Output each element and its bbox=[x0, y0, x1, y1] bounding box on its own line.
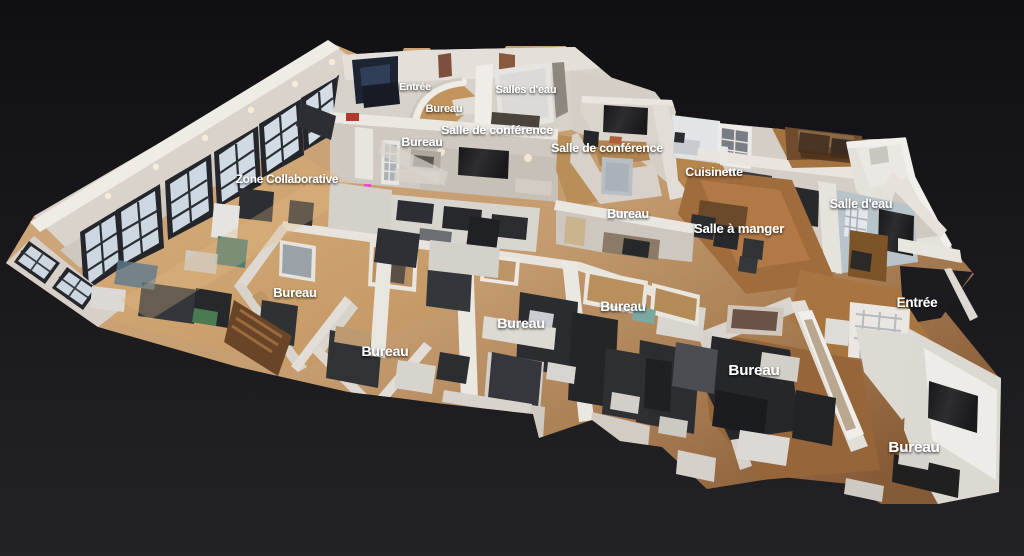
svg-text:Bureau: Bureau bbox=[888, 439, 939, 456]
svg-text:Salle de conférence: Salle de conférence bbox=[551, 141, 663, 155]
svg-text:Bureau: Bureau bbox=[273, 285, 317, 300]
svg-text:Bureau: Bureau bbox=[361, 343, 408, 359]
svg-text:Bureau: Bureau bbox=[497, 316, 545, 332]
svg-text:Salle d'eau: Salle d'eau bbox=[830, 197, 893, 211]
svg-text:Bureau: Bureau bbox=[607, 207, 649, 221]
svg-text:Bureau: Bureau bbox=[600, 299, 645, 314]
svg-text:Salle à manger: Salle à manger bbox=[694, 221, 784, 236]
svg-text:Bureau: Bureau bbox=[426, 103, 463, 115]
svg-text:Zone Collaborative: Zone Collaborative bbox=[236, 172, 339, 186]
svg-text:Bureau: Bureau bbox=[401, 135, 442, 149]
svg-text:Bureau: Bureau bbox=[728, 362, 779, 379]
svg-text:Salle de conférence: Salle de conférence bbox=[441, 123, 553, 137]
svg-text:Entrée: Entrée bbox=[399, 81, 431, 93]
svg-text:Salles d'eau: Salles d'eau bbox=[496, 84, 557, 96]
svg-text:Entrée: Entrée bbox=[897, 295, 939, 310]
svg-text:Cuisinette: Cuisinette bbox=[685, 165, 743, 179]
